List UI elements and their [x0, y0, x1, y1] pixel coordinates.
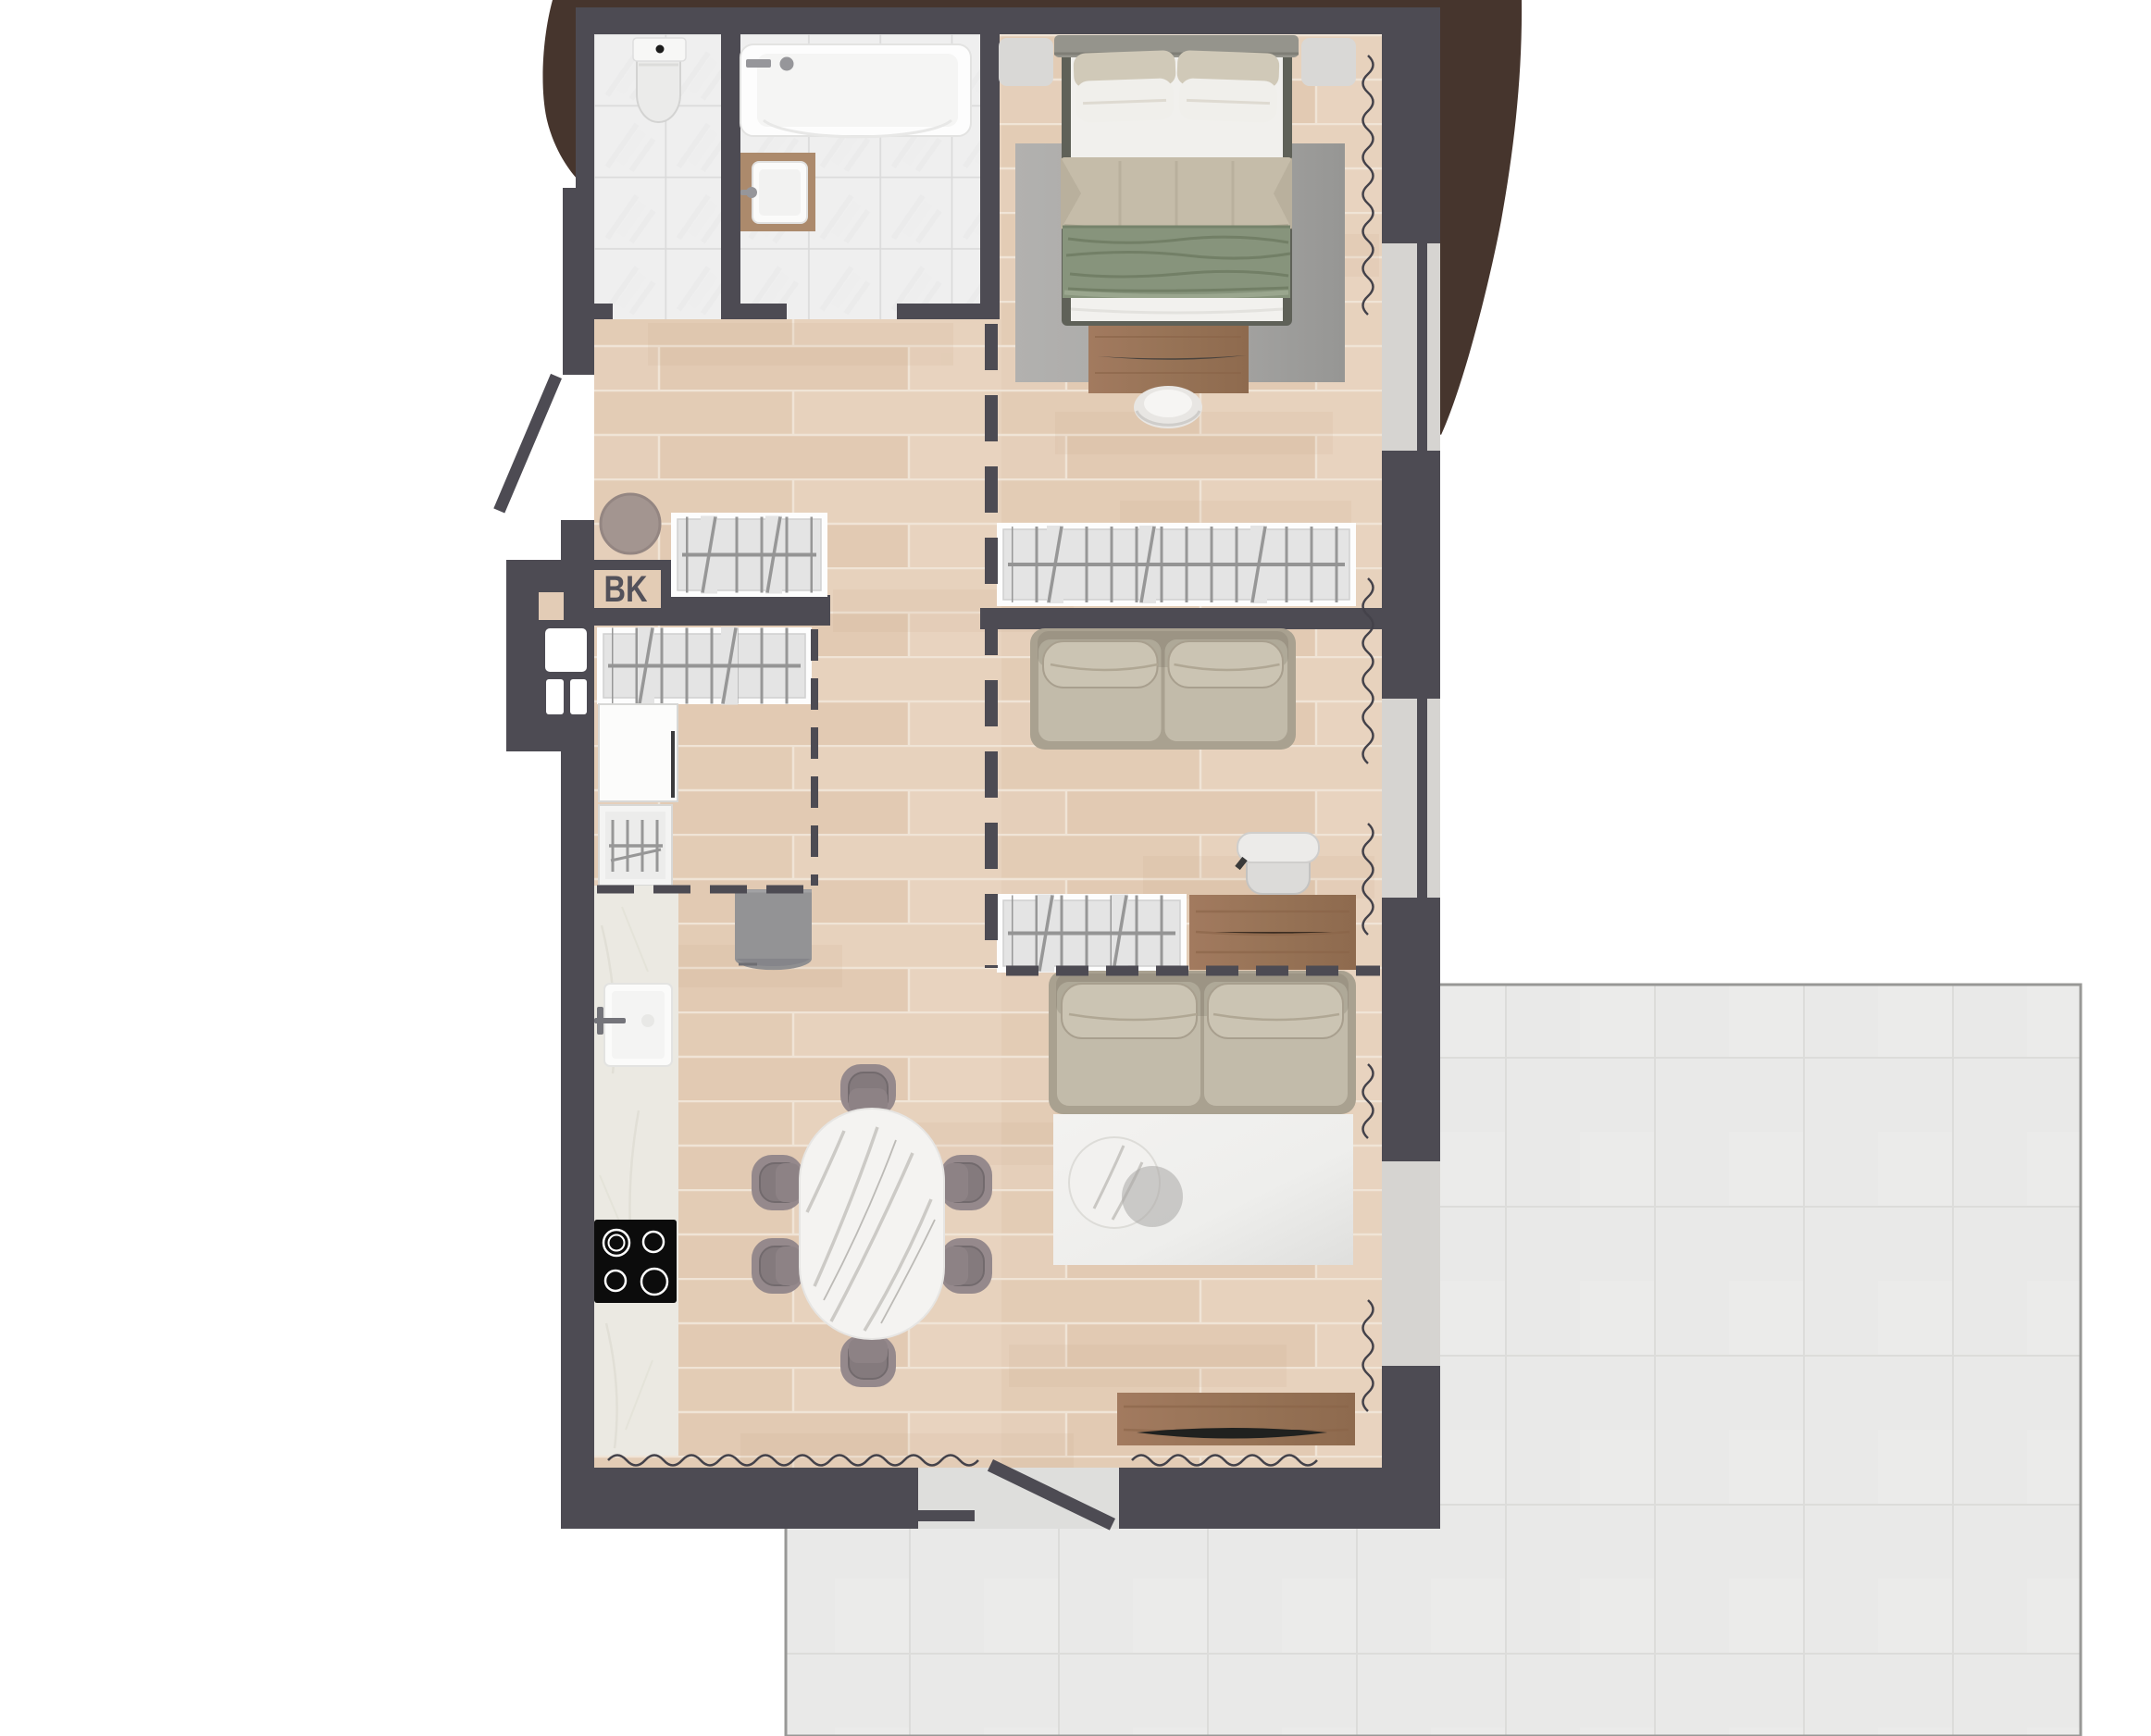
svg-text:BK: BK — [604, 569, 648, 610]
